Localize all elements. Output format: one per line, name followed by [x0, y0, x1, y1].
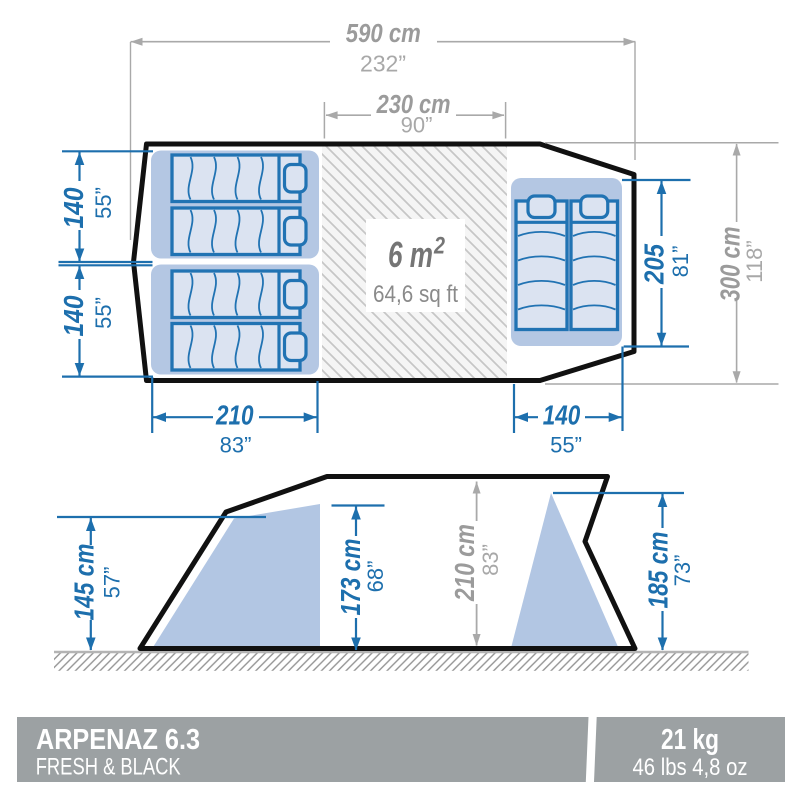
svg-text:90”: 90”: [401, 113, 433, 138]
svg-text:232”: 232”: [360, 51, 406, 77]
svg-text:83”: 83”: [478, 544, 503, 576]
svg-text:140: 140: [58, 295, 89, 337]
svg-text:55”: 55”: [91, 187, 116, 219]
svg-text:81”: 81”: [668, 246, 693, 278]
svg-text:140: 140: [543, 400, 581, 431]
svg-text:205: 205: [639, 244, 670, 285]
svg-text:6 m: 6 m: [388, 234, 433, 275]
svg-text:173 cm: 173 cm: [335, 539, 366, 616]
svg-text:300 cm: 300 cm: [715, 227, 746, 302]
svg-text:57”: 57”: [100, 567, 125, 599]
svg-text:210 cm: 210 cm: [449, 524, 480, 602]
svg-text:83”: 83”: [220, 433, 252, 458]
svg-text:210: 210: [215, 400, 254, 431]
svg-text:68”: 68”: [363, 561, 388, 593]
svg-text:55”: 55”: [91, 297, 116, 329]
svg-text:2: 2: [433, 233, 445, 260]
svg-text:21 kg: 21 kg: [661, 724, 719, 756]
svg-text:46 lbs 4,8 oz: 46 lbs 4,8 oz: [633, 754, 748, 781]
svg-text:64,6 sq ft: 64,6 sq ft: [373, 281, 458, 308]
svg-text:FRESH & BLACK: FRESH & BLACK: [36, 754, 181, 781]
svg-text:118”: 118”: [742, 240, 767, 282]
svg-text:590 cm: 590 cm: [346, 20, 421, 48]
svg-text:73”: 73”: [670, 555, 695, 587]
svg-text:140: 140: [58, 187, 89, 229]
svg-text:185 cm: 185 cm: [643, 532, 674, 609]
svg-text:55”: 55”: [550, 433, 582, 458]
svg-text:145 cm: 145 cm: [69, 544, 100, 621]
svg-text:ARPENAZ 6.3: ARPENAZ 6.3: [36, 724, 200, 756]
